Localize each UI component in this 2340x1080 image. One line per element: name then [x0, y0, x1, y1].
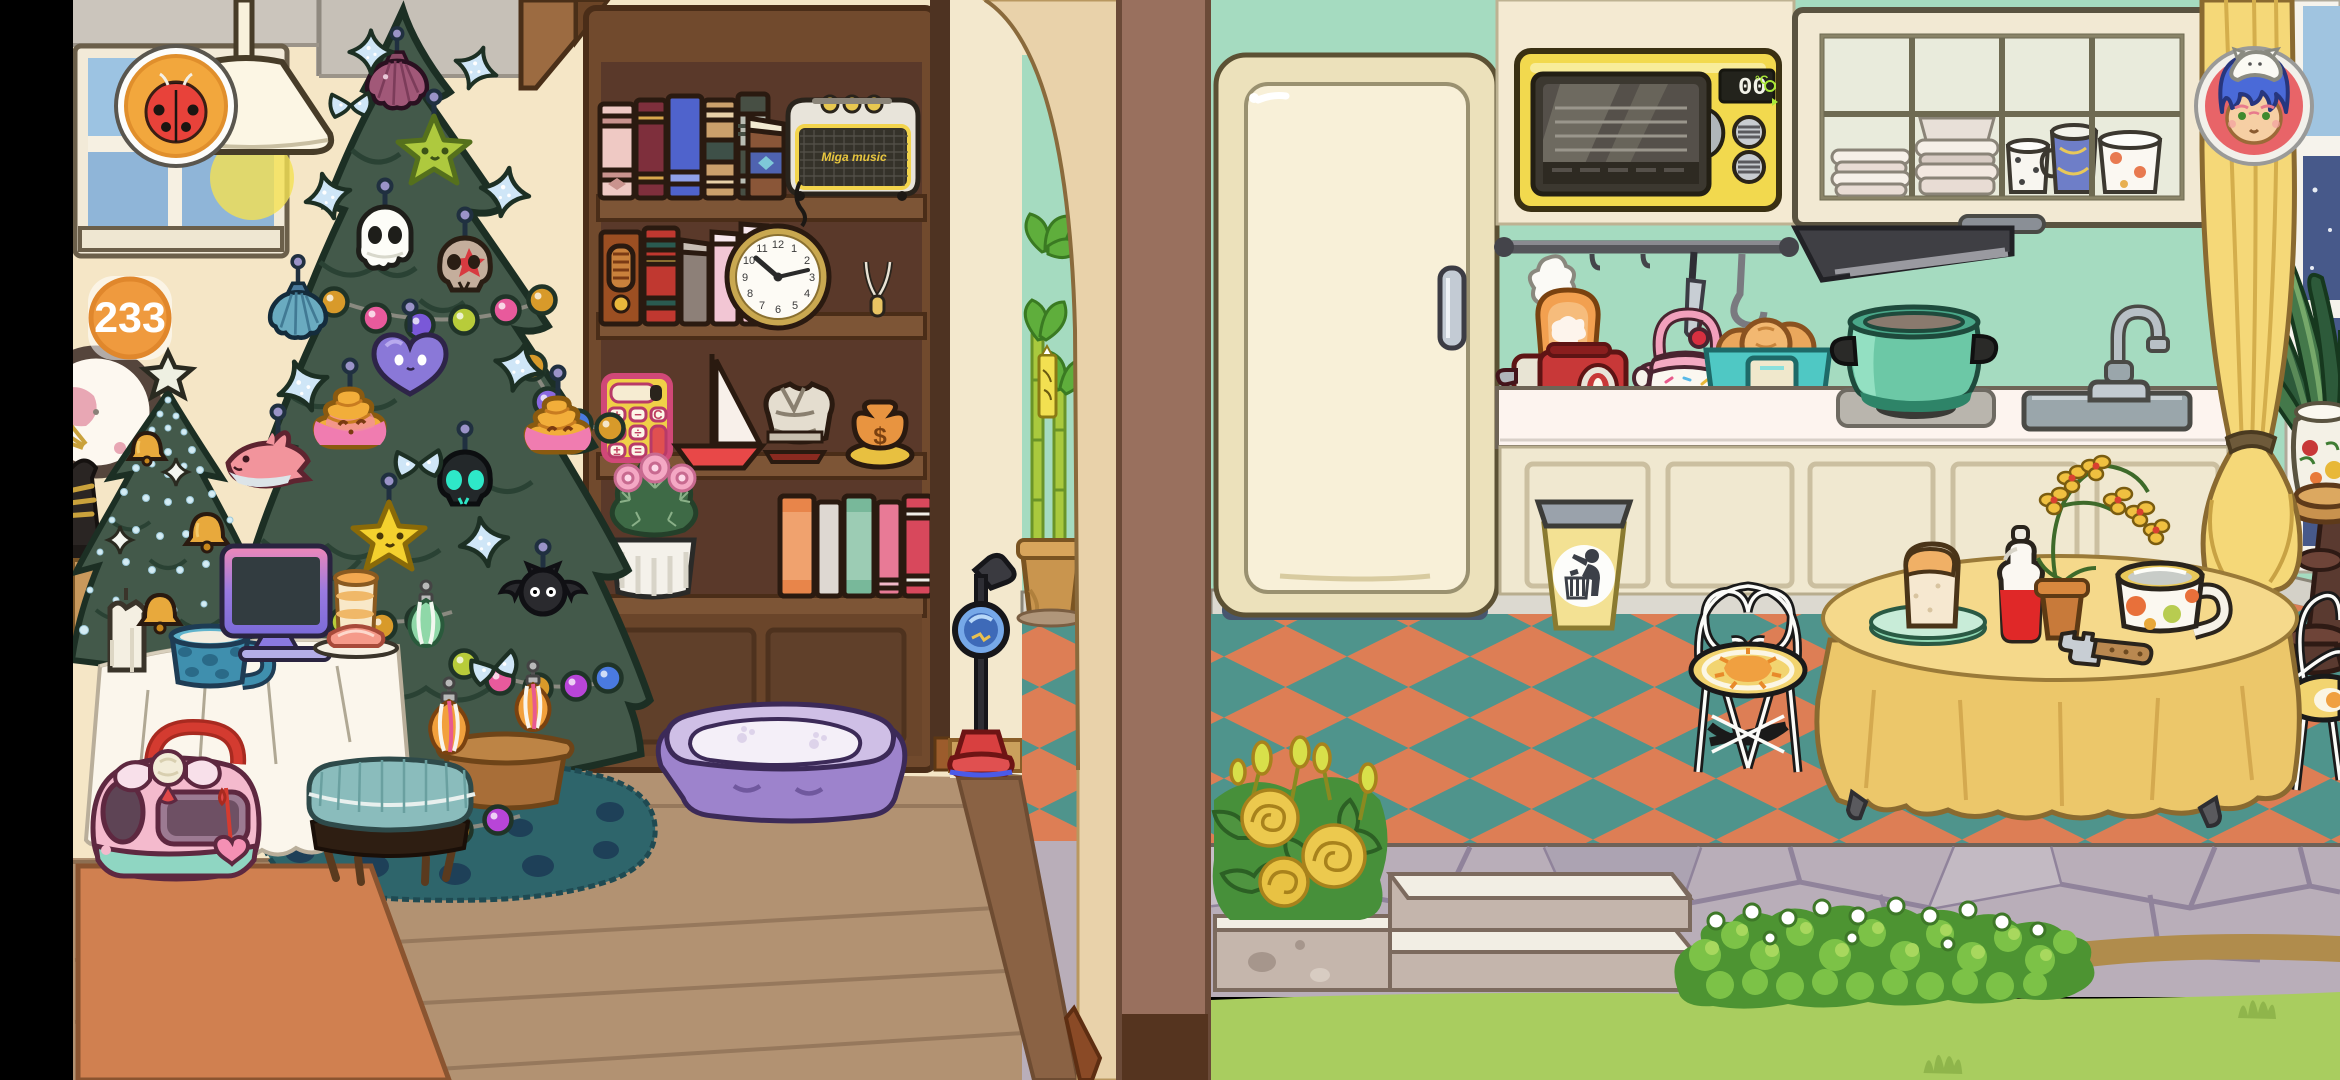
- svg-text:1: 1: [791, 243, 797, 255]
- svg-text:8: 8: [747, 288, 753, 300]
- svg-text:7: 7: [759, 300, 765, 312]
- svg-text:°C: °C: [1755, 73, 1769, 87]
- svg-text:233: 233: [94, 294, 166, 342]
- svg-text:4: 4: [804, 288, 810, 300]
- svg-text:−: −: [634, 407, 642, 422]
- svg-text:$: $: [873, 423, 887, 450]
- svg-text:11: 11: [756, 243, 767, 255]
- svg-text:5: 5: [792, 300, 798, 312]
- svg-text:÷: ÷: [634, 425, 641, 440]
- svg-text:C: C: [653, 407, 663, 422]
- svg-text:10: 10: [743, 255, 755, 267]
- svg-text:3: 3: [809, 272, 815, 284]
- svg-text:=: =: [634, 443, 642, 458]
- svg-text:2: 2: [804, 255, 810, 267]
- svg-text:6: 6: [775, 304, 781, 316]
- svg-text:±: ±: [613, 443, 620, 458]
- svg-text:Miga music: Miga music: [821, 150, 887, 164]
- svg-text:12: 12: [772, 239, 784, 251]
- svg-text:9: 9: [742, 272, 748, 284]
